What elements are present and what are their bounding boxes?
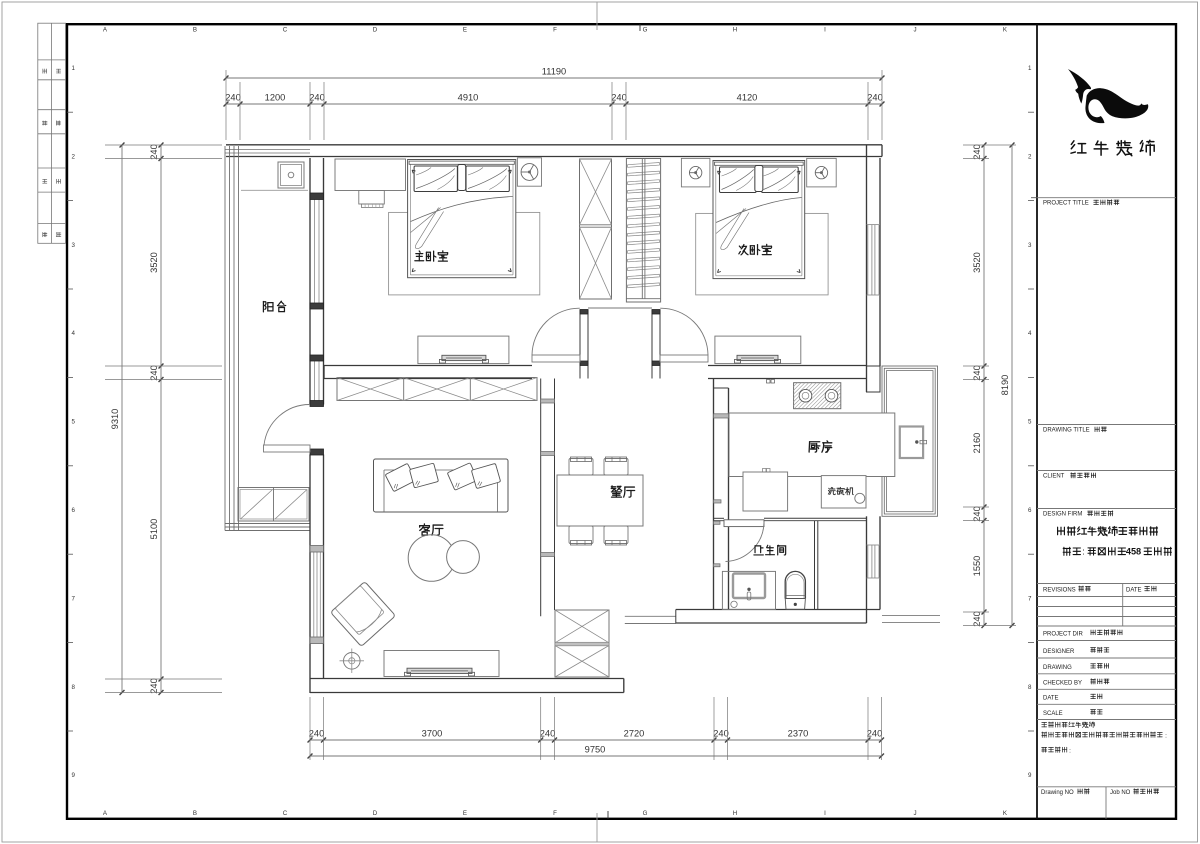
svg-text:4: 4 (1028, 330, 1032, 337)
svg-text:2: 2 (72, 153, 76, 160)
svg-text:1200: 1200 (265, 93, 286, 103)
svg-text:9: 9 (1028, 772, 1032, 779)
svg-text:DATE: DATE (1126, 588, 1142, 594)
svg-text:240: 240 (225, 93, 241, 103)
svg-text:E: E (463, 27, 467, 34)
svg-text:3: 3 (1028, 242, 1032, 249)
svg-text:DESIGN FIRM: DESIGN FIRM (1043, 512, 1082, 518)
svg-text:D: D (373, 27, 378, 34)
svg-text:J: J (913, 27, 916, 34)
svg-text:9750: 9750 (585, 745, 606, 755)
svg-text:2370: 2370 (788, 729, 809, 739)
svg-text::: : (1082, 547, 1085, 557)
svg-text:6: 6 (72, 507, 76, 514)
svg-text:D: D (373, 810, 378, 817)
svg-text:I: I (824, 27, 826, 34)
svg-text:8: 8 (72, 684, 76, 691)
svg-text:3700: 3700 (422, 729, 443, 739)
svg-text:PROJECT TITLE: PROJECT TITLE (1043, 201, 1089, 207)
svg-text:240: 240 (972, 144, 982, 160)
svg-text:240: 240 (713, 729, 729, 739)
svg-text:CLIENT: CLIENT (1043, 474, 1065, 480)
svg-text:H: H (733, 27, 737, 34)
svg-text:240: 240 (149, 144, 159, 160)
svg-text:240: 240 (972, 365, 982, 381)
svg-text:CHECKED BY: CHECKED BY (1043, 681, 1082, 687)
svg-text:4910: 4910 (458, 93, 479, 103)
svg-text:Job NO: Job NO (1110, 790, 1131, 796)
svg-text:6: 6 (1028, 507, 1032, 514)
svg-text:240: 240 (972, 611, 982, 627)
svg-text:9: 9 (72, 772, 76, 779)
svg-text::: : (1165, 733, 1167, 740)
svg-text:240: 240 (540, 729, 556, 739)
svg-text:3: 3 (72, 242, 76, 249)
svg-text:3520: 3520 (149, 252, 159, 273)
svg-text:DRAWING: DRAWING (1043, 665, 1072, 671)
svg-text:PROJECT DIR: PROJECT DIR (1043, 632, 1084, 638)
svg-text:I: I (824, 810, 826, 817)
svg-text:G: G (643, 27, 648, 34)
svg-text:240: 240 (309, 729, 325, 739)
svg-text:H: H (733, 810, 737, 817)
svg-text:REVISIONS: REVISIONS (1043, 588, 1076, 594)
svg-text:B: B (193, 810, 197, 817)
svg-text::: : (1069, 748, 1071, 755)
svg-text:DATE: DATE (1043, 696, 1059, 702)
svg-text:9310: 9310 (110, 409, 120, 430)
svg-text:DRAWING TITLE: DRAWING TITLE (1043, 428, 1090, 434)
svg-text:2160: 2160 (972, 433, 982, 454)
svg-text:1550: 1550 (972, 556, 982, 577)
svg-text:240: 240 (309, 93, 325, 103)
svg-text:B: B (193, 27, 197, 34)
svg-text:3520: 3520 (972, 252, 982, 273)
svg-text:2: 2 (1028, 153, 1032, 160)
svg-text:240: 240 (867, 729, 883, 739)
svg-text:240: 240 (149, 365, 159, 381)
svg-text:5100: 5100 (149, 519, 159, 540)
svg-text:F: F (553, 810, 557, 817)
svg-text:240: 240 (611, 93, 627, 103)
svg-text:G: G (643, 810, 648, 817)
svg-text:2720: 2720 (624, 729, 645, 739)
svg-text:J: J (913, 810, 916, 817)
svg-text:8190: 8190 (1000, 375, 1010, 396)
svg-text:458: 458 (1126, 547, 1141, 557)
svg-text:4: 4 (72, 330, 76, 337)
svg-text:1: 1 (1028, 65, 1032, 72)
svg-text:7: 7 (1028, 595, 1032, 602)
svg-text:SCALE: SCALE (1043, 711, 1063, 717)
svg-text:240: 240 (149, 678, 159, 694)
svg-text:240: 240 (867, 93, 883, 103)
svg-text:C: C (283, 27, 288, 34)
svg-text:E: E (463, 810, 467, 817)
svg-text:C: C (283, 810, 288, 817)
svg-text:8: 8 (1028, 684, 1032, 691)
svg-text:5: 5 (1028, 419, 1032, 426)
svg-text:DESIGNER: DESIGNER (1043, 649, 1075, 655)
svg-text:240: 240 (972, 506, 982, 522)
svg-text:11190: 11190 (542, 67, 566, 77)
svg-text:7: 7 (72, 595, 76, 602)
svg-text:Drawing NO: Drawing NO (1041, 790, 1074, 796)
svg-text:F: F (553, 27, 557, 34)
svg-text:1: 1 (72, 65, 76, 72)
svg-text:4120: 4120 (737, 93, 758, 103)
svg-text:5: 5 (72, 419, 76, 426)
